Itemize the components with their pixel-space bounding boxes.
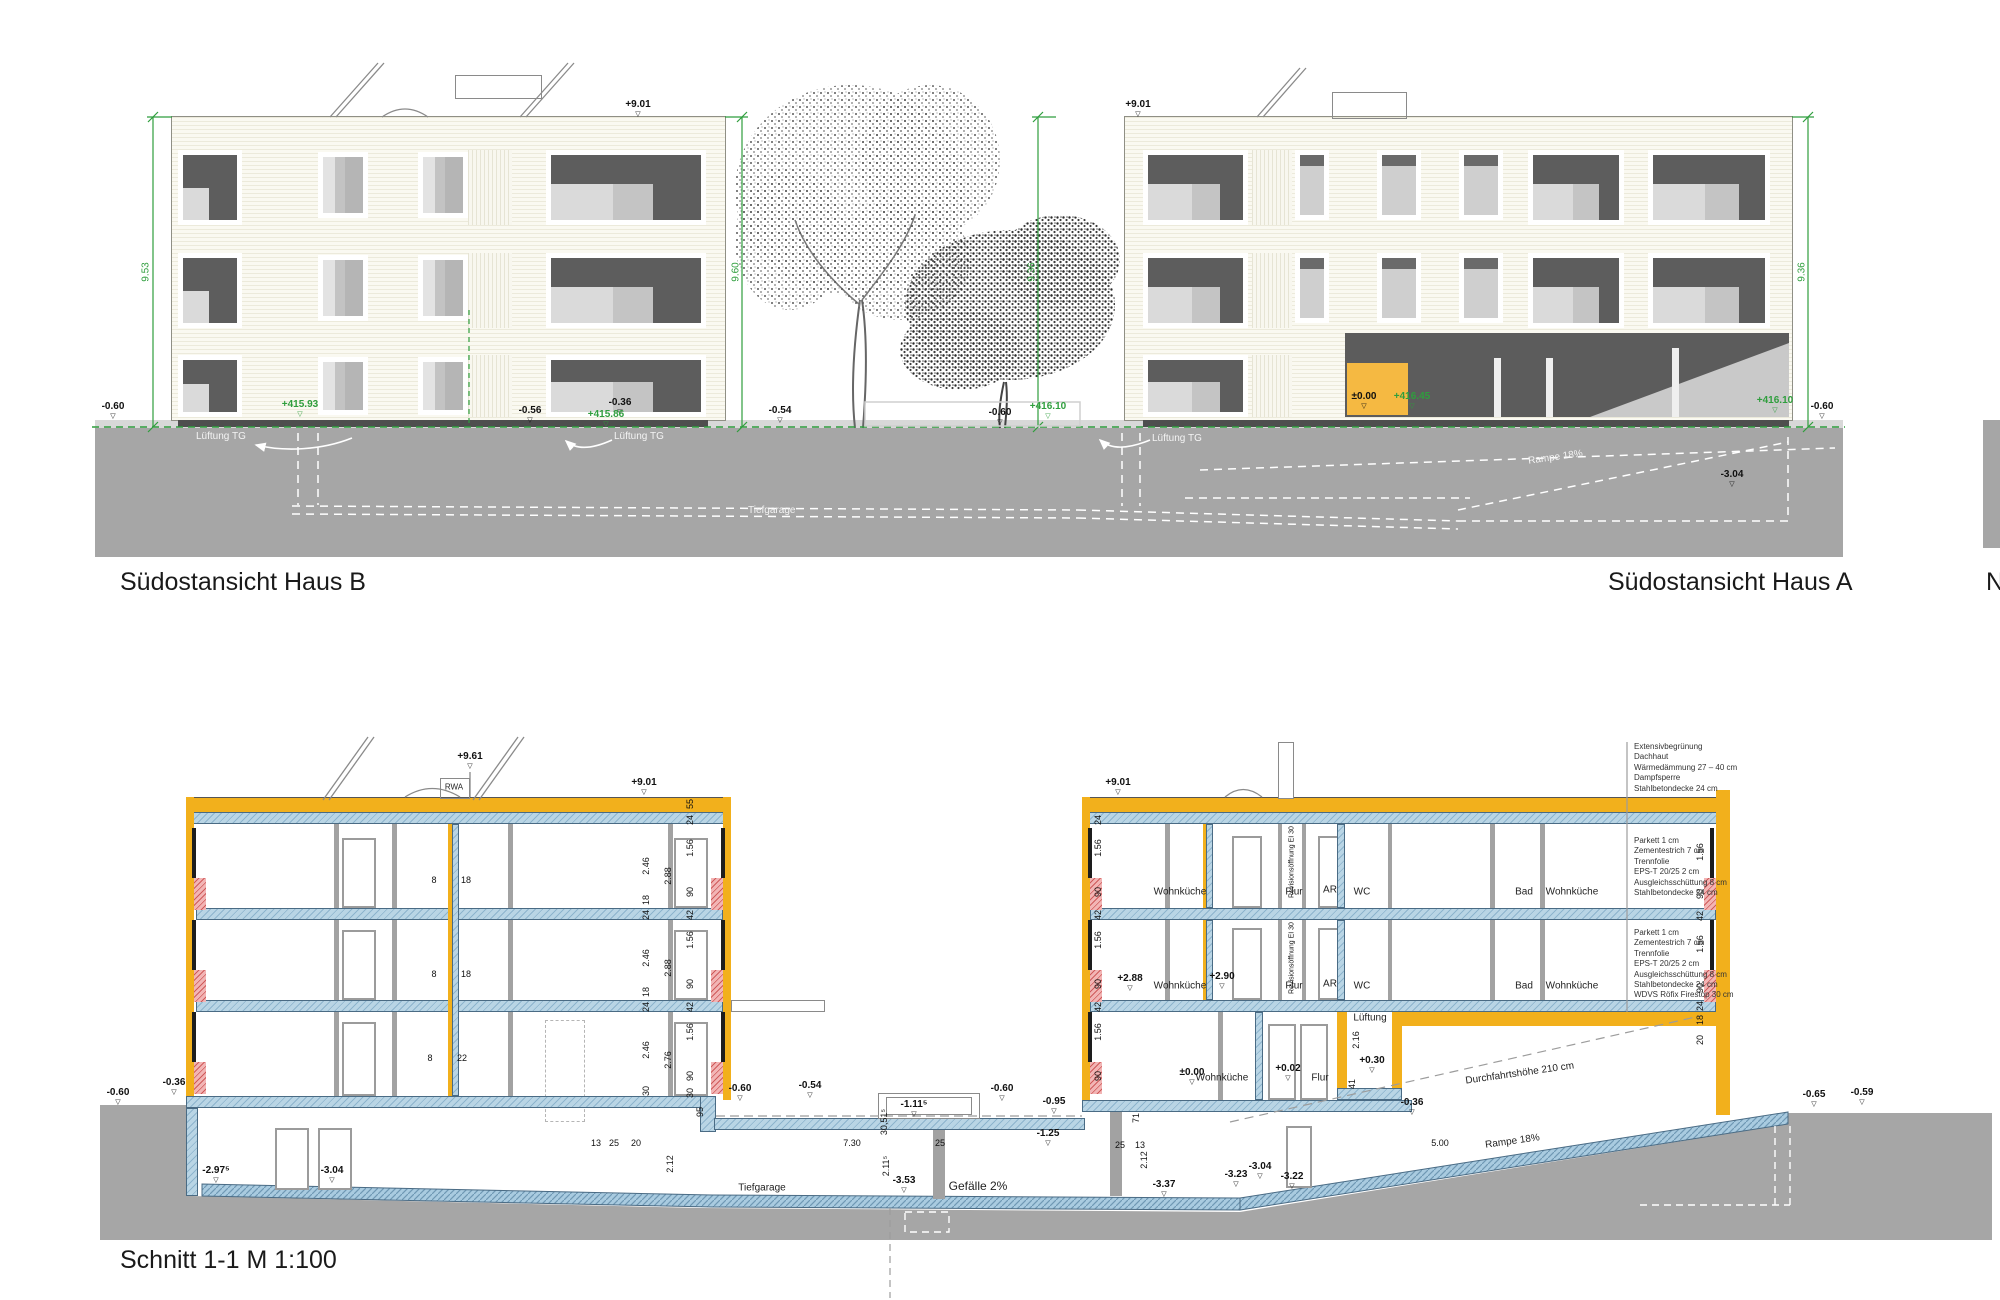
level-triangle-icon: ▽ [1045, 1140, 1050, 1147]
level-triangle-icon: ▽ [1772, 407, 1777, 414]
roof-chimney-box [1332, 92, 1407, 119]
partition [334, 920, 339, 1000]
room-label: Wohnküche [1154, 981, 1207, 992]
window-frame [1088, 828, 1092, 878]
balcony-opening-wide [1648, 150, 1770, 225]
ground-band-next-sheet [1983, 420, 2000, 548]
room-label: WC [1354, 887, 1371, 898]
room-label: Lüftung [1353, 1013, 1386, 1024]
partition [1388, 824, 1392, 908]
dim-label: 20 [1695, 1035, 1705, 1045]
window-frame [192, 828, 196, 878]
level-triangle-icon: ▽ [1127, 985, 1132, 992]
dim-label: 30 [641, 1086, 651, 1096]
level-marker: -0.36▽ [163, 1078, 186, 1096]
room-label: Wohnküche [1546, 887, 1599, 898]
balcony-glazing [613, 184, 653, 220]
dim-label: 90 [1093, 1071, 1103, 1081]
level-marker: +0.02▽ [1275, 1064, 1300, 1082]
level-triangle-icon: ▽ [603, 421, 608, 428]
window [1295, 150, 1329, 220]
vertical-cladding-pier [1252, 253, 1292, 328]
level-triangle-icon: ▽ [1285, 1075, 1290, 1082]
level-marker: -3.37▽ [1153, 1180, 1176, 1198]
vent-label: Lüftung TG [196, 431, 246, 442]
level-triangle-icon: ▽ [1233, 1181, 1238, 1188]
dim-label: 13 [591, 1138, 601, 1148]
level-marker: +416.10▽ [1030, 402, 1066, 420]
window-frame [721, 1012, 725, 1062]
level-marker: -0.56▽ [519, 406, 542, 424]
window-frame [192, 920, 196, 970]
dim-label: 2.11⁵ [881, 1156, 891, 1177]
balcony-glazing [1533, 287, 1573, 323]
dim-label: 18 [641, 895, 651, 905]
balcony-panel [183, 188, 209, 220]
level-marker: +9.01▽ [1125, 100, 1150, 118]
garage-post [1546, 358, 1553, 417]
balcony-glazing [1533, 184, 1573, 220]
partition [334, 1012, 339, 1096]
balcony-glazing [551, 287, 613, 323]
dim-label: 90 [685, 979, 695, 989]
balcony-glazing [1192, 287, 1220, 323]
level-marker: -0.60▽ [991, 1084, 1014, 1102]
dim-label: 90 [685, 1071, 695, 1081]
partition [334, 824, 339, 908]
level-triangle-icon: ▽ [807, 1092, 812, 1099]
balcony-glazing [1653, 184, 1705, 220]
partition [392, 920, 397, 1000]
partition [1388, 920, 1392, 1000]
dim-label: 24 [1093, 815, 1103, 825]
level-marker: -1.11⁵▽ [901, 1100, 928, 1118]
balcony-panel [183, 291, 209, 323]
spandrel-panel [711, 878, 723, 910]
level-triangle-icon: ▽ [527, 417, 532, 424]
roof-insulation [1082, 797, 1730, 813]
balcony-opening-wide [546, 253, 706, 328]
balcony-glazing [1653, 287, 1705, 323]
window [1459, 253, 1503, 323]
balcony-glazing [1148, 382, 1192, 412]
balcony-glazing [1705, 184, 1739, 220]
window-frame [1088, 920, 1092, 970]
dim-label: 5.00 [1431, 1138, 1449, 1148]
dim-label: 24 [1695, 1001, 1705, 1011]
partition [392, 1012, 397, 1096]
dim-label: 2.46 [641, 949, 651, 967]
garage-post [1494, 358, 1501, 417]
level-triangle-icon: ▽ [467, 763, 472, 770]
balcony-opening-wide [1143, 253, 1248, 328]
window [1377, 150, 1421, 220]
level-triangle-icon: ▽ [297, 411, 302, 418]
shaft-wall-concrete [1206, 824, 1213, 908]
balcony-opening [178, 355, 242, 417]
level-marker: -0.65▽ [1803, 1090, 1826, 1108]
level-triangle-icon: ▽ [329, 1177, 334, 1184]
dim-label: 2.12 [1139, 1151, 1149, 1169]
dim-label: 2.46 [641, 1041, 651, 1059]
courtyard-entry-box-inner [886, 1097, 972, 1115]
room-label: Bad [1515, 887, 1533, 898]
level-marker: -0.54▽ [769, 406, 792, 424]
dim-label: 18 [641, 987, 651, 997]
concrete-wall [1337, 824, 1345, 908]
partition [392, 824, 397, 908]
room-label: Bad [1515, 981, 1533, 992]
balcony-glazing [1148, 184, 1192, 220]
dim-label: 8 [431, 875, 436, 885]
vent-label: Lüftung TG [614, 431, 664, 442]
dim-label: 71 [1131, 1113, 1141, 1123]
balcony-glazing [1705, 287, 1739, 323]
window-frame [1088, 1012, 1092, 1062]
window-frame [721, 828, 725, 878]
dim-label: 55 [685, 799, 695, 809]
balcony-glazing [1573, 287, 1599, 323]
dim-label: 1.56 [685, 839, 695, 857]
door-opening [1232, 836, 1262, 908]
roof-insulation [186, 797, 731, 813]
vent-label: Lüftung TG [1152, 433, 1202, 444]
room-label: Tiefgarage [738, 1183, 785, 1194]
dim-label: 2.88 [663, 959, 673, 977]
dim-label: 41 [1347, 1079, 1357, 1089]
level-marker: -0.60▽ [1811, 402, 1834, 420]
dim-label: 25 [609, 1138, 619, 1148]
balcony-glazing [1148, 287, 1192, 323]
room-label: Wohnküche [1154, 887, 1207, 898]
concrete-wall [1255, 1012, 1263, 1100]
level-marker: +9.01▽ [1105, 778, 1130, 796]
roof-chimney [1278, 742, 1294, 799]
dim-label: 1.56 [685, 1023, 695, 1041]
level-triangle-icon: ▽ [1729, 481, 1734, 488]
level-marker: +2.88▽ [1117, 974, 1142, 992]
floor-buildup-note-2: Parkett 1 cm Zementestrich 7 cm Trennfol… [1634, 928, 1734, 1001]
level-triangle-icon: ▽ [641, 789, 646, 796]
dim-label: 18 [461, 875, 471, 885]
level-triangle-icon: ▽ [110, 413, 115, 420]
dim-label: 42 [1695, 911, 1705, 921]
door-opening [342, 930, 376, 1000]
dim-label: 90 [685, 887, 695, 897]
level-marker: -0.60▽ [729, 1084, 752, 1102]
room-label: WC [1354, 981, 1371, 992]
window [318, 357, 368, 415]
partition [668, 824, 673, 908]
balcony-opening-wide [1143, 355, 1248, 417]
dim-label: 18 [1695, 1015, 1705, 1025]
overhang-soffit [1398, 1012, 1716, 1026]
architectural-drawing-sheet: Südostansicht Haus B Südostansicht Haus … [0, 0, 2000, 1300]
level-marker: +415.93▽ [282, 400, 318, 418]
level-marker: +9.61▽ [457, 752, 482, 770]
revision-label: Revisionsöffnung EI 30 [1289, 826, 1296, 898]
partition [1278, 920, 1282, 1000]
level-triangle-icon: ▽ [901, 1187, 906, 1194]
level-triangle-icon: ▽ [997, 419, 1002, 426]
level-marker: -0.60▽ [102, 402, 125, 420]
balcony-glazing [551, 184, 613, 220]
dim-label: 42 [1093, 910, 1103, 920]
garage-post [1672, 348, 1679, 417]
ramp-label: Rampe 18% [1485, 1132, 1541, 1151]
level-marker: +9.01▽ [625, 100, 650, 118]
garage-ceiling-slab [714, 1118, 1085, 1130]
level-triangle-icon: ▽ [1369, 1067, 1374, 1074]
shaft-wall [1392, 1012, 1402, 1100]
level-marker: -3.04▽ [321, 1166, 344, 1184]
floor-slab [1090, 908, 1716, 920]
balcony-glazing [1192, 184, 1220, 220]
vertical-cladding-pier [468, 253, 512, 328]
dim-label: 30 [685, 1088, 695, 1098]
dimension-label: 9.60 [731, 262, 742, 281]
level-marker: -0.60▽ [107, 1088, 130, 1106]
garage-label: Tiefgarage [748, 505, 795, 516]
dimension-label: 9.36 [1027, 262, 1038, 281]
spandrel-panel [711, 970, 723, 1002]
balcony-opening-wide [1528, 150, 1624, 225]
balcony-opening-wide [1648, 253, 1770, 328]
level-marker: -0.36▽ [1401, 1098, 1424, 1116]
level-marker: +2.90▽ [1209, 972, 1234, 990]
dim-label: 90 [1093, 979, 1103, 989]
level-marker: -3.23▽ [1225, 1170, 1248, 1188]
partition [508, 824, 513, 908]
level-triangle-icon: ▽ [999, 1095, 1004, 1102]
shaft-wall [1337, 1012, 1347, 1100]
window [318, 152, 368, 218]
level-triangle-icon: ▽ [115, 1099, 120, 1106]
dim-label: 90 [1093, 887, 1103, 897]
level-marker: -3.22▽ [1281, 1172, 1304, 1190]
spandrel-panel [194, 878, 206, 910]
dim-label: 2.16 [1351, 1031, 1361, 1049]
window [418, 255, 468, 321]
dim-label: 30,51⁵ [879, 1109, 889, 1135]
window-frame [721, 920, 725, 970]
level-triangle-icon: ▽ [1409, 403, 1414, 410]
balcony-glazing [551, 382, 613, 412]
window [318, 255, 368, 321]
level-triangle-icon: ▽ [1219, 983, 1224, 990]
window [418, 152, 468, 218]
door-opening [342, 1022, 376, 1096]
rwa-label: RWA [445, 783, 463, 792]
door-opening [1300, 1024, 1328, 1100]
level-triangle-icon: ▽ [1361, 403, 1366, 410]
window [418, 357, 468, 415]
level-triangle-icon: ▽ [1289, 1183, 1294, 1190]
door-opening [1232, 928, 1262, 1000]
level-triangle-icon: ▽ [1189, 1079, 1194, 1086]
level-triangle-icon: ▽ [1161, 1191, 1166, 1198]
room-label: Wohnküche [1546, 981, 1599, 992]
view-title-haus-a: Südostansicht Haus A [1608, 568, 1853, 597]
window [1459, 150, 1503, 220]
view-title-haus-b: Südostansicht Haus B [120, 568, 366, 597]
dim-label: 2.88 [663, 867, 673, 885]
dim-label: 1.56 [1093, 1023, 1103, 1041]
dim-label: 25 [935, 1138, 945, 1148]
view-title-section: Schnitt 1-1 M 1:100 [120, 1246, 337, 1275]
level-marker: +0.30▽ [1359, 1056, 1384, 1074]
level-marker: -3.04▽ [1721, 470, 1744, 488]
window [1295, 253, 1329, 323]
shaft-floor [1337, 1088, 1402, 1100]
window [1377, 253, 1421, 323]
balcony-glazing [1192, 382, 1220, 412]
partition [1490, 824, 1495, 908]
dim-label: 2.46 [641, 857, 651, 875]
level-marker: +415.86▽ [588, 410, 624, 428]
level-triangle-icon: ▽ [171, 1089, 176, 1096]
vertical-cladding-pier [1252, 355, 1292, 417]
dim-label: 22 [457, 1053, 467, 1063]
dim-label: 42 [685, 910, 695, 920]
roof-slab [1082, 812, 1730, 824]
dim-label: 1.56 [685, 931, 695, 949]
dim-label: 7.30 [843, 1138, 861, 1148]
level-triangle-icon: ▽ [1409, 1109, 1414, 1116]
roof-buildup-note: Extensivbegrünung Dachhaut Wärmedämmung … [1634, 742, 1737, 794]
dim-label: 20 [631, 1138, 641, 1148]
level-marker: -0.54▽ [799, 1081, 822, 1099]
spandrel-panel [194, 1062, 206, 1094]
level-triangle-icon: ▽ [1045, 413, 1050, 420]
entrance-canopy [731, 1000, 825, 1012]
level-marker: ±0.00▽ [1180, 1068, 1205, 1086]
tree-dark [900, 215, 1120, 428]
partition [1278, 824, 1282, 908]
partition [508, 1012, 513, 1096]
dim-label: 1.56 [1093, 931, 1103, 949]
dim-label: 13 [1135, 1140, 1145, 1150]
level-triangle-icon: ▽ [635, 111, 640, 118]
dim-label: 18 [461, 969, 471, 979]
level-marker: -0.95▽ [1043, 1097, 1066, 1115]
window-frame [192, 1012, 196, 1062]
level-triangle-icon: ▽ [777, 417, 782, 424]
vertical-cladding-pier [468, 355, 512, 417]
balcony-opening-wide [1143, 150, 1248, 225]
floor-buildup-note: Parkett 1 cm Zementestrich 7 cm Trennfol… [1634, 836, 1727, 898]
level-triangle-icon: ▽ [1135, 111, 1140, 118]
spandrel-panel [711, 1062, 723, 1094]
balcony-opening [178, 253, 242, 328]
partition [1540, 824, 1545, 908]
dim-label: 24 [641, 1002, 651, 1012]
door-opening [1268, 1024, 1296, 1100]
partition [1540, 920, 1545, 1000]
level-triangle-icon: ▽ [1051, 1108, 1056, 1115]
level-triangle-icon: ▽ [737, 1095, 742, 1102]
level-marker: -0.60▽ [989, 408, 1012, 426]
partition [1218, 1012, 1223, 1100]
dim-label: 24 [641, 910, 651, 920]
ground-floor-slab [1082, 1100, 1412, 1112]
partition [508, 920, 513, 1000]
balcony-opening-wide [1528, 253, 1624, 328]
level-marker: -3.04▽ [1249, 1162, 1272, 1180]
basement-door [275, 1128, 309, 1190]
room-label: AR [1323, 885, 1337, 896]
dim-label: 42 [685, 1002, 695, 1012]
level-triangle-icon: ▽ [1819, 413, 1824, 420]
level-triangle-icon: ▽ [213, 1177, 218, 1184]
room-label: AR [1323, 979, 1337, 990]
roof-slab [186, 812, 731, 824]
dim-label: 2.12 [665, 1155, 675, 1173]
balcony-glazing [613, 287, 653, 323]
dimension-label: 9.36 [1797, 262, 1808, 281]
dim-label: 2.76 [663, 1051, 673, 1069]
haus-b-plinth [178, 420, 708, 427]
tree-light [735, 85, 1000, 428]
clearance-label: Durchfahrtshöhe 210 cm [1465, 1060, 1575, 1086]
basement-wall [186, 1108, 198, 1196]
level-marker: -3.53▽ [893, 1176, 916, 1194]
revision-label: Revisionsöffnung EI 30 [1289, 922, 1296, 994]
vertical-cladding-pier [468, 150, 512, 225]
room-label: Flur [1311, 1073, 1328, 1084]
door-opening [342, 838, 376, 908]
view-title-partial: N [1986, 568, 2000, 597]
balcony-panel [183, 384, 209, 412]
dimension-label: 9.53 [141, 262, 152, 281]
dim-label: 42 [1093, 1002, 1103, 1012]
garage-wall [1110, 1112, 1122, 1196]
dim-label: 8 [431, 969, 436, 979]
balcony-opening-wide [546, 150, 706, 225]
spandrel-panel [194, 970, 206, 1002]
dim-label: 8 [427, 1053, 432, 1063]
floor-slab [1090, 1000, 1716, 1012]
level-marker: +416.10▽ [1757, 396, 1793, 414]
level-triangle-icon: ▽ [911, 1111, 916, 1118]
concrete-wall [1337, 920, 1345, 1000]
dim-label: 25 [1115, 1140, 1125, 1150]
ground-floor-slab [186, 1096, 716, 1108]
level-triangle-icon: ▽ [1115, 789, 1120, 796]
balcony-glazing [1573, 184, 1599, 220]
level-marker: ±0.00▽ [1352, 392, 1377, 410]
level-marker: +416.45▽ [1394, 392, 1430, 410]
level-triangle-icon: ▽ [1257, 1173, 1262, 1180]
level-marker: -0.59▽ [1851, 1088, 1874, 1106]
balcony-opening [178, 150, 242, 225]
level-marker: -2.97⁵▽ [202, 1166, 230, 1184]
haus-a-plinth [1143, 420, 1789, 427]
level-triangle-icon: ▽ [1859, 1099, 1864, 1106]
dim-label: 24 [685, 815, 695, 825]
vertical-cladding-pier [1252, 150, 1292, 225]
dim-label: 1.56 [1093, 839, 1103, 857]
level-marker: -1.25▽ [1037, 1129, 1060, 1147]
level-triangle-icon: ▽ [1811, 1101, 1816, 1108]
roof-equipment-box [455, 75, 542, 99]
partition [1490, 920, 1495, 1000]
dim-label: 95 [695, 1107, 705, 1117]
level-marker: +9.01▽ [631, 778, 656, 796]
slope-label: Gefälle 2% [949, 1179, 1008, 1193]
